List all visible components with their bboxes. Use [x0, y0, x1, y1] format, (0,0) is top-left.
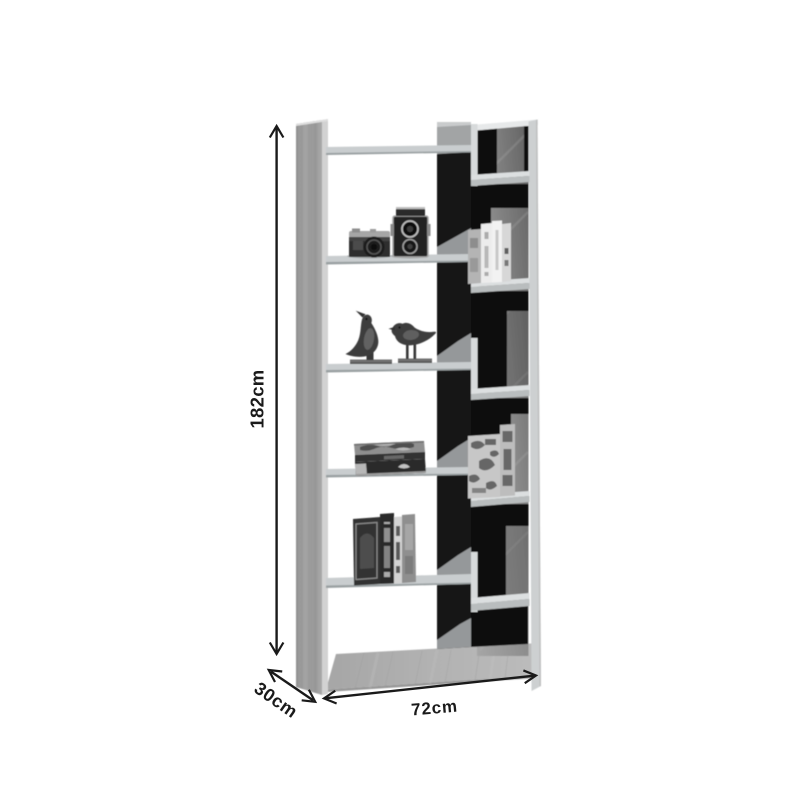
- svg-text:182cm: 182cm: [247, 369, 268, 428]
- svg-text:72cm: 72cm: [410, 697, 458, 720]
